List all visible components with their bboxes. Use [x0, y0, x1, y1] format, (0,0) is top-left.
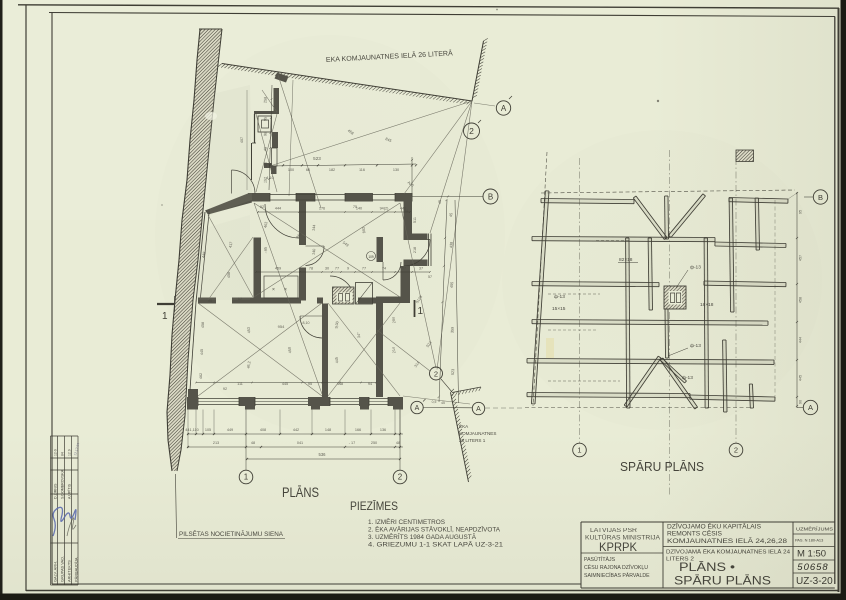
svg-text:258: 258 [263, 97, 267, 104]
svg-text:66: 66 [306, 168, 310, 172]
svg-text:84: 84 [60, 452, 64, 456]
svg-text:92: 92 [223, 387, 227, 391]
svg-text:A: A [808, 403, 813, 412]
svg-text:D.ZIRNIS: D.ZIRNIS [53, 483, 57, 499]
svg-text:PLĀNS: PLĀNS [282, 484, 319, 500]
svg-text:1. IZMĒRI CENTIMETROS: 1. IZMĒRI CENTIMETROS [368, 519, 445, 526]
svg-text:0,5: 0,5 [432, 400, 437, 404]
svg-text:166: 166 [355, 428, 361, 432]
svg-text:803: 803 [362, 227, 367, 234]
svg-text:523: 523 [451, 369, 455, 376]
svg-text:26 LITERS 1: 26 LITERS 1 [459, 438, 486, 443]
svg-text:REMONTS CĒSIS: REMONTS CĒSIS [667, 531, 722, 538]
svg-text:90: 90 [799, 400, 803, 404]
svg-text:94: 94 [404, 209, 408, 213]
svg-text:ĒKA: ĒKA [459, 423, 469, 429]
svg-text:77: 77 [335, 267, 339, 271]
svg-text:2: 2 [734, 446, 738, 455]
svg-text:458: 458 [227, 272, 231, 278]
svg-text:- 17: - 17 [349, 441, 356, 445]
svg-text:445: 445 [200, 349, 204, 355]
svg-text:KOMJAUNATNES: KOMJAUNATNES [459, 431, 496, 436]
svg-text:CĒSU RAJONA DZĪVOKĻU: CĒSU RAJONA DZĪVOKĻU [584, 564, 648, 571]
svg-text:459: 459 [275, 267, 281, 271]
svg-text:LATVIJAS PSR: LATVIJAS PSR [590, 528, 638, 534]
svg-text:407: 407 [240, 137, 244, 143]
svg-text:453: 453 [247, 327, 252, 334]
svg-text:214: 214 [392, 347, 397, 354]
svg-text:45: 45 [449, 213, 453, 218]
svg-text:A: A [501, 104, 507, 113]
svg-text:438: 438 [449, 242, 453, 249]
svg-text:444: 444 [275, 207, 281, 211]
svg-text:954: 954 [278, 324, 285, 329]
svg-text:DZĪVOJAMO ĒKU KAPITĀLAIS: DZĪVOJAMO ĒKU KAPITĀLAIS [667, 524, 761, 531]
svg-text:15×15: 15×15 [552, 306, 566, 312]
svg-text:445: 445 [799, 375, 803, 381]
svg-text:450: 450 [288, 347, 293, 354]
svg-text:8,10: 8,10 [303, 321, 310, 325]
svg-text:S.DOMBROVSKA: S.DOMBROVSKA [60, 469, 64, 499]
svg-text:458: 458 [201, 322, 205, 328]
svg-text:100: 100 [288, 168, 294, 172]
svg-text:×: × [272, 287, 275, 293]
svg-text:523: 523 [313, 156, 321, 161]
svg-text:116: 116 [359, 168, 365, 172]
svg-text:445: 445 [335, 357, 340, 364]
svg-text:ф-13: ф-13 [690, 343, 701, 349]
svg-text:94(2): 94(2) [380, 207, 390, 211]
svg-text:SAIMNIECĪBAS PĀRVALDE: SAIMNIECĪBAS PĀRVALDE [584, 572, 650, 579]
svg-text:12.9: 12.9 [67, 449, 71, 456]
svg-text:82×18: 82×18 [619, 257, 633, 263]
svg-text:441,110: 441,110 [185, 428, 198, 432]
svg-text:511: 511 [413, 217, 417, 223]
svg-text:77: 77 [362, 267, 366, 271]
svg-text:PĀRBAUDĪJA: PĀRBAUDĪJA [74, 557, 79, 582]
svg-text:2: 2 [434, 369, 438, 378]
svg-text:442: 442 [293, 428, 299, 432]
svg-text:~95: ~95 [264, 247, 269, 254]
svg-text:1: 1 [577, 446, 581, 455]
svg-text:KPRPK: KPRPK [599, 542, 637, 554]
svg-text:213: 213 [213, 441, 219, 445]
svg-text:536: 536 [319, 452, 327, 457]
svg-text:150: 150 [263, 162, 267, 169]
svg-text:B: B [818, 193, 823, 202]
svg-text:M 1:50: M 1:50 [797, 549, 826, 560]
svg-text:109: 109 [368, 255, 374, 259]
svg-text:105: 105 [205, 428, 211, 432]
svg-text:18×18: 18×18 [700, 302, 714, 308]
svg-text:148: 148 [325, 428, 331, 432]
svg-text:34°: 34° [357, 332, 362, 339]
svg-text:A: A [476, 406, 481, 413]
svg-text:GRUPAS VAD.: GRUPAS VAD. [60, 556, 65, 582]
svg-text:455: 455 [450, 282, 454, 289]
svg-text:1: 1 [418, 306, 424, 317]
svg-text:458: 458 [799, 297, 803, 303]
svg-text:98: 98 [263, 132, 267, 136]
svg-text:457: 457 [799, 255, 803, 261]
svg-text:74: 74 [382, 267, 386, 271]
svg-text:1: 1 [244, 473, 249, 482]
svg-text:DZĪVOJAMĀ ĒKA KOMJAUNATNES IEL: DZĪVOJAMĀ ĒKA KOMJAUNATNES IELĀ 24 [666, 549, 790, 556]
svg-text:462: 462 [199, 373, 203, 379]
svg-text:92: 92 [260, 205, 264, 209]
svg-text:ф-13: ф-13 [690, 265, 701, 271]
svg-text:75: 75 [353, 205, 357, 209]
svg-text:95: 95 [799, 210, 803, 214]
svg-text:250: 250 [371, 441, 377, 445]
svg-text:204: 204 [392, 317, 397, 324]
svg-text:95: 95 [263, 117, 267, 121]
svg-text:17: 17 [238, 297, 242, 301]
svg-text:1: 1 [162, 311, 168, 322]
svg-text:PLĀNS •: PLĀNS • [679, 560, 735, 574]
svg-text:12-9: 12-9 [53, 449, 57, 456]
svg-text:ф-13: ф-13 [554, 294, 565, 300]
svg-text:130: 130 [393, 168, 399, 172]
svg-text:A.UPĪTIS: A.UPĪTIS [67, 483, 71, 499]
svg-text:ф-13: ф-13 [682, 375, 693, 381]
svg-text:A: A [415, 405, 420, 412]
svg-text:2: 2 [398, 473, 403, 482]
svg-text:B: B [488, 192, 493, 201]
svg-text:95: 95 [208, 299, 212, 303]
svg-text:041: 041 [297, 441, 303, 445]
svg-text:50658: 50658 [797, 562, 828, 573]
svg-text:45: 45 [263, 147, 267, 151]
svg-text:182: 182 [329, 168, 335, 172]
svg-text:SPĀRU PLĀNS: SPĀRU PLĀNS [674, 574, 771, 588]
svg-text:PILSĒTAS NOCIETINĀJUMU SIENA: PILSĒTAS NOCIETINĀJUMU SIENA [179, 531, 284, 538]
svg-text:218: 218 [413, 247, 417, 253]
svg-text:30: 30 [325, 267, 329, 271]
svg-text:444: 444 [799, 337, 803, 343]
svg-text:PIEZĪMES: PIEZĪMES [350, 499, 398, 513]
svg-text:2. ĒKA AVĀRIJAS STĀVOKLĪ, NEAP: 2. ĒKA AVĀRIJAS STĀVOKLĪ, NEAPDZĪVOTA [368, 527, 500, 534]
svg-text:136: 136 [380, 428, 386, 432]
svg-text:KOMJAUNATNES IELĀ 24,26,28: KOMJAUNATNES IELĀ 24,26,28 [667, 538, 788, 545]
svg-text:3. UZMĒRĪTS 1984 GADA AUGUSTĀ: 3. UZMĒRĪTS 1984 GADA AUGUSTĀ [368, 534, 476, 541]
svg-text:48: 48 [251, 441, 255, 445]
svg-text:9: 9 [347, 267, 349, 271]
svg-text:KULTŪRAS MINISTRIJA: KULTŪRAS MINISTRIJA [585, 535, 660, 542]
svg-text:37: 37 [419, 267, 423, 271]
svg-text:PASŪTĪTĀJS: PASŪTĪTĀJS [584, 556, 616, 563]
svg-text:PAS. N 180-А13: PAS. N 180-А13 [795, 538, 823, 543]
svg-text:57: 57 [428, 275, 432, 279]
svg-text:48: 48 [396, 441, 400, 445]
svg-text:78: 78 [309, 267, 313, 271]
svg-text:408: 408 [260, 428, 266, 432]
svg-text:UZMĒRĪJUMS: UZMĒRĪJUMS [796, 526, 833, 532]
svg-text:4,10: 4,10 [266, 176, 273, 180]
svg-text:4. GRIEZUMU 1-1 SKAT LAPĀ UZ-3: 4. GRIEZUMU 1-1 SKAT LAPĀ UZ-3-21 [368, 542, 504, 549]
svg-text:45: 45 [438, 200, 442, 204]
svg-text:SPĀRU PLĀNS: SPĀRU PLĀNS [620, 459, 704, 474]
svg-text:359: 359 [450, 327, 454, 334]
svg-text:2: 2 [469, 126, 474, 136]
svg-text:449: 449 [227, 428, 233, 432]
svg-text:ARHITEKTS: ARHITEKTS [67, 560, 72, 582]
svg-text:45: 45 [441, 401, 445, 405]
svg-text:57: 57 [402, 267, 406, 271]
svg-text:UZ-3-20: UZ-3-20 [796, 576, 833, 587]
svg-text:GALV. ARH.: GALV. ARH. [53, 561, 58, 582]
svg-text:176: 176 [319, 207, 325, 211]
